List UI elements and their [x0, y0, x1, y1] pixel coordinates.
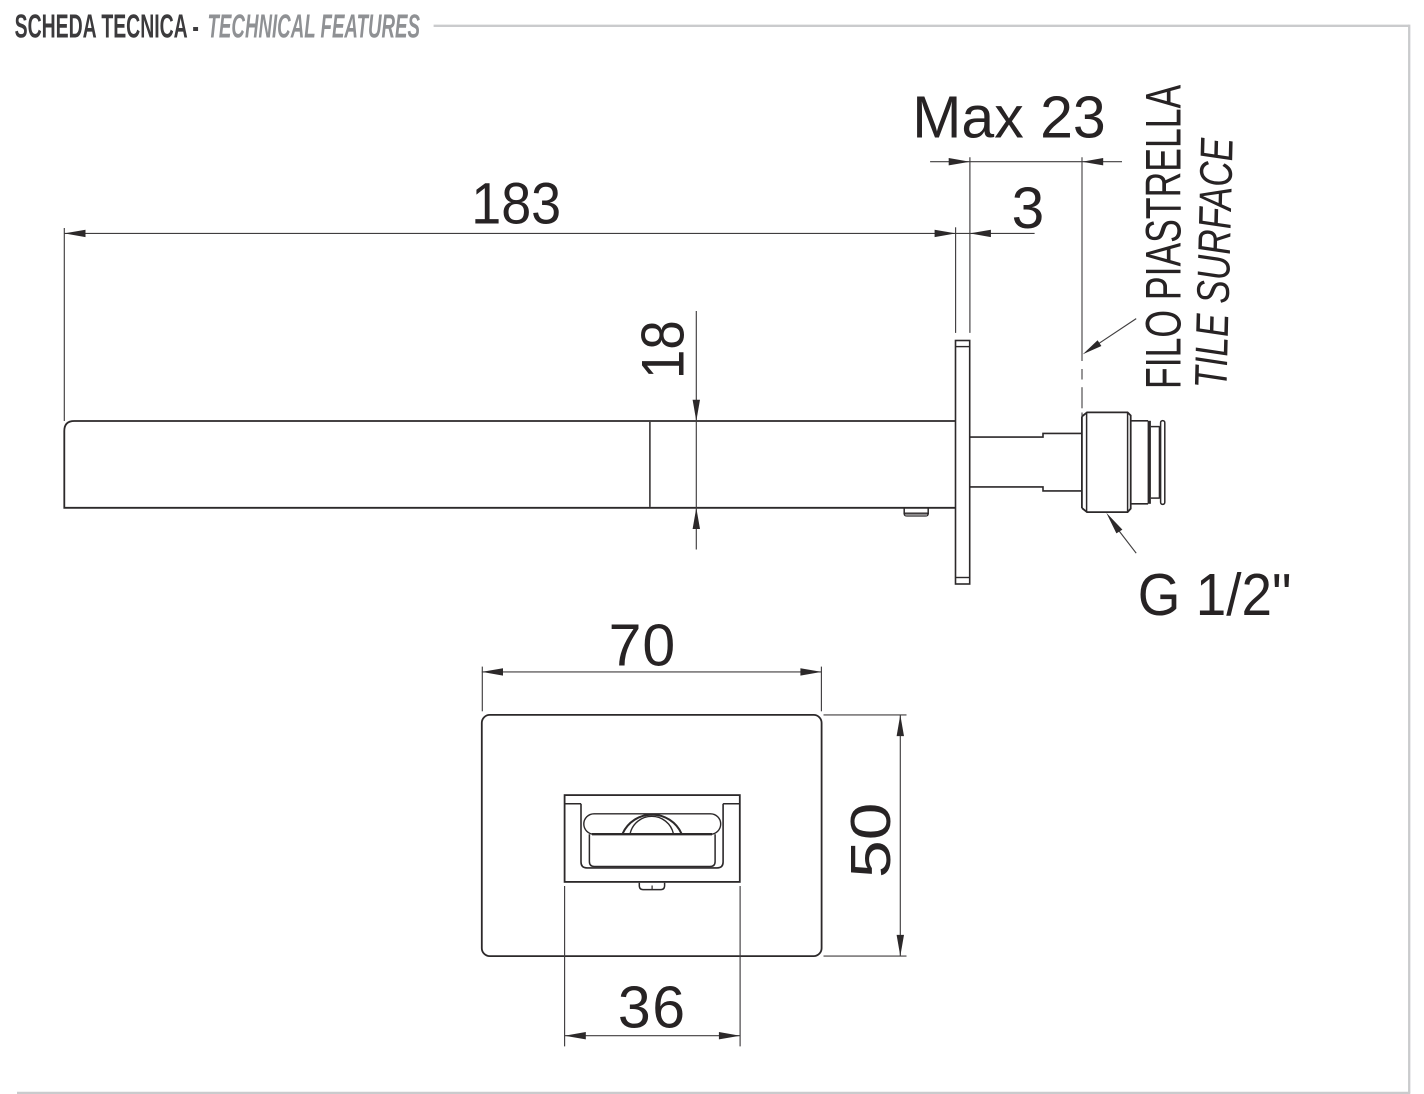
svg-text:SCHEDA TECNICA -: SCHEDA TECNICA - — [15, 7, 199, 45]
svg-text:TECHNICAL FEATURES: TECHNICAL FEATURES — [208, 8, 421, 45]
svg-text:3: 3 — [1012, 176, 1045, 241]
svg-text:183: 183 — [471, 170, 561, 236]
svg-text:TILE SURFACE: TILE SURFACE — [1185, 137, 1243, 388]
svg-text:Max 23: Max 23 — [912, 84, 1105, 150]
svg-text:50: 50 — [840, 803, 902, 878]
svg-text:FILO PIASTRELLA: FILO PIASTRELLA — [1137, 85, 1192, 389]
svg-text:36: 36 — [618, 975, 687, 1041]
svg-text:70: 70 — [609, 613, 677, 679]
svg-text:G 1/2": G 1/2" — [1138, 562, 1292, 628]
svg-text:18: 18 — [629, 320, 696, 379]
